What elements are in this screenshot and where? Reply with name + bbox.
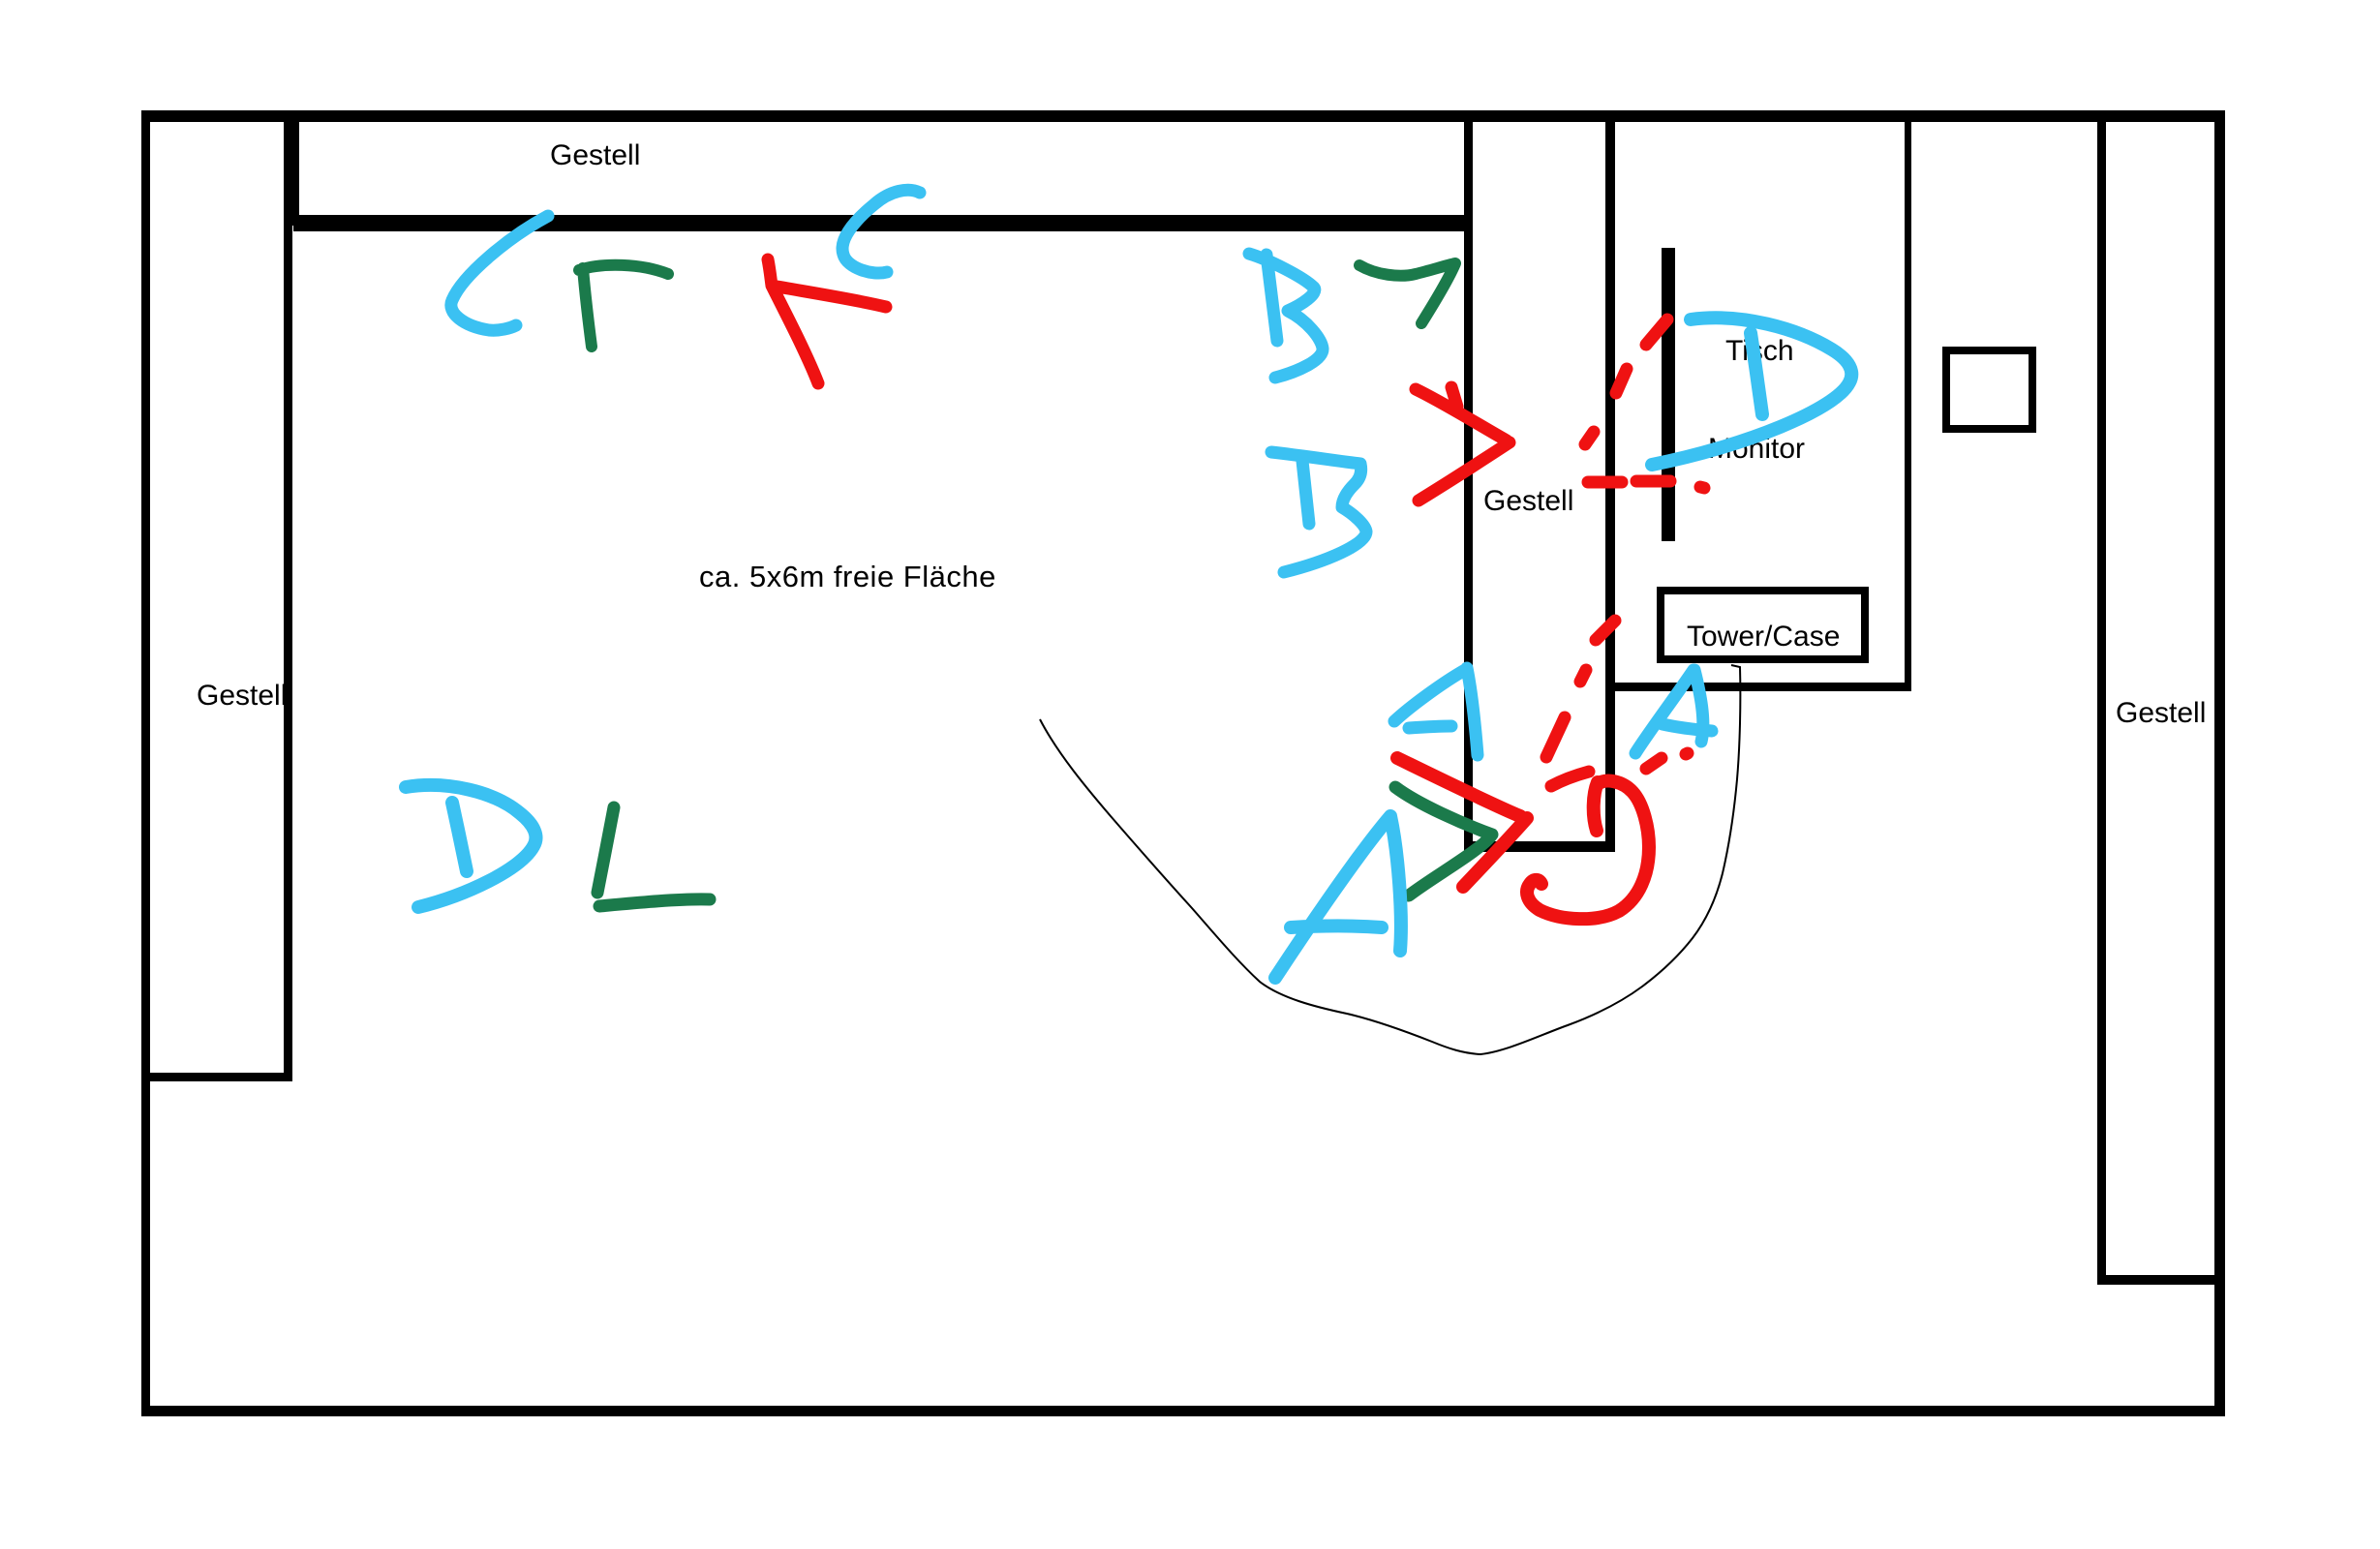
svg-text:ca. 5x6m freie Fläche: ca. 5x6m freie Fläche bbox=[699, 560, 996, 593]
svg-text:Gestell: Gestell bbox=[197, 680, 287, 712]
svg-text:Gestell: Gestell bbox=[550, 139, 640, 171]
svg-text:Gestell: Gestell bbox=[1483, 485, 1573, 517]
svg-text:Gestell: Gestell bbox=[2116, 697, 2206, 729]
svg-text:Tower/Case: Tower/Case bbox=[1687, 621, 1840, 653]
